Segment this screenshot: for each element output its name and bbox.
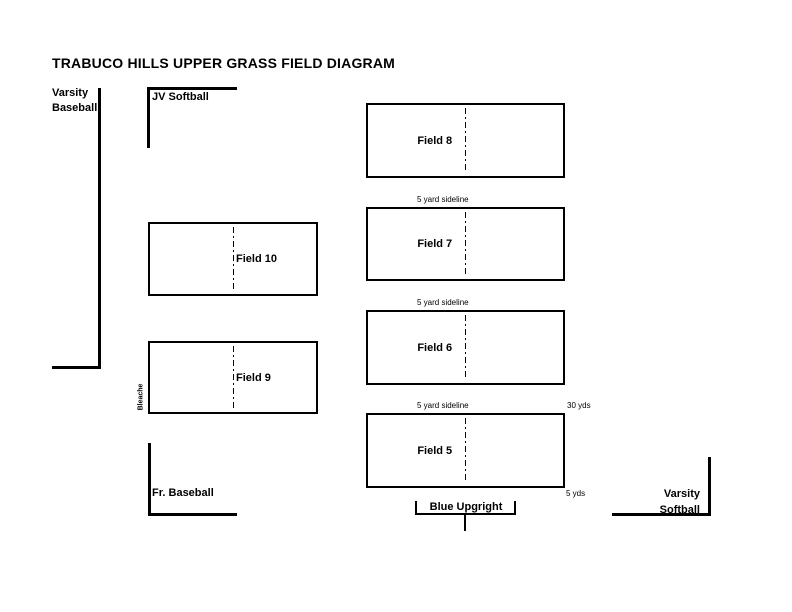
varsity-softball-label: Varsity Softball xyxy=(600,486,700,518)
fr-baseball-boundary-bottom-line xyxy=(148,513,237,516)
varsity-softball-label-line2: Softball xyxy=(600,502,700,518)
fr-baseball-boundary-vertical-line xyxy=(148,443,151,516)
field-6: Field 6 xyxy=(366,310,565,385)
varsity-baseball-label-line2: Baseball xyxy=(52,101,97,116)
varsity-softball-boundary-vertical-line xyxy=(708,457,711,516)
field-8: Field 8 xyxy=(366,103,565,178)
field-5: Field 5 xyxy=(366,413,565,488)
field-width-label: 30 yds xyxy=(567,401,591,410)
sideline-label-field7: 5 yard sideline xyxy=(417,195,469,204)
sideline-offset-label: 5 yds xyxy=(566,489,585,498)
page-title: TRABUCO HILLS UPPER GRASS FIELD DIAGRAM xyxy=(52,55,395,71)
field-7: Field 7 xyxy=(366,207,565,281)
varsity-baseball-boundary-bottom-line xyxy=(52,366,101,369)
field-8-label: Field 8 xyxy=(386,135,484,147)
field-7-label: Field 7 xyxy=(386,238,484,250)
fr-baseball-label: Fr. Baseball xyxy=(152,486,214,501)
bleachers-label: Bleache xyxy=(138,384,145,411)
jv-softball-boundary-vertical-line xyxy=(147,87,150,148)
varsity-baseball-label-line1: Varsity xyxy=(52,86,97,101)
field-9-label: Field 9 xyxy=(233,372,271,384)
blue-upright-bracket-stem xyxy=(464,515,466,531)
sideline-label-field5: 5 yard sideline xyxy=(417,401,469,410)
field-10: Field 10 xyxy=(148,222,318,296)
jv-softball-label: JV Softball xyxy=(152,90,209,105)
field-10-label: Field 10 xyxy=(233,253,277,265)
sideline-label-field6: 5 yard sideline xyxy=(417,298,469,307)
varsity-softball-label-line1: Varsity xyxy=(600,486,700,502)
field-9: Field 9 xyxy=(148,341,318,414)
varsity-baseball-boundary-vertical-line xyxy=(98,88,101,369)
varsity-baseball-label: Varsity Baseball xyxy=(52,86,97,116)
field-5-label: Field 5 xyxy=(386,445,484,457)
field-diagram-page: TRABUCO HILLS UPPER GRASS FIELD DIAGRAM … xyxy=(0,0,792,612)
field-6-label: Field 6 xyxy=(386,342,484,354)
